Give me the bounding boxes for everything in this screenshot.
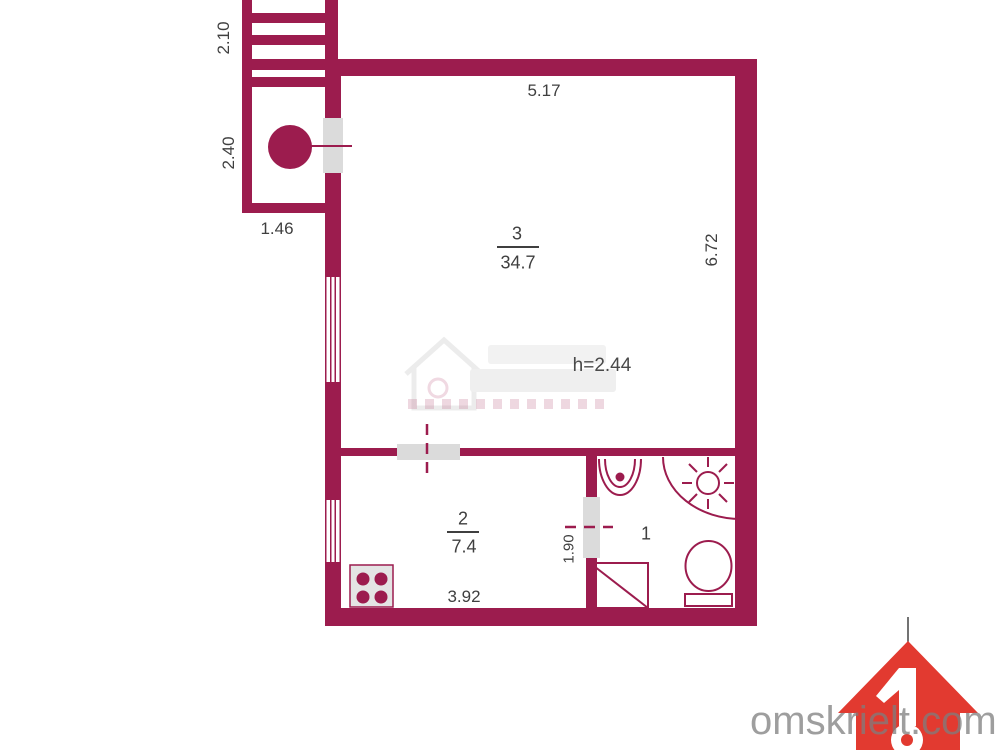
watermark-site-text: omskrielt.com xyxy=(750,699,997,744)
brand-logo-layer xyxy=(0,0,1000,750)
floor-plan: 2.10 2.40 1.46 5.17 6.72 3.92 1.90 3 34.… xyxy=(0,0,1000,750)
